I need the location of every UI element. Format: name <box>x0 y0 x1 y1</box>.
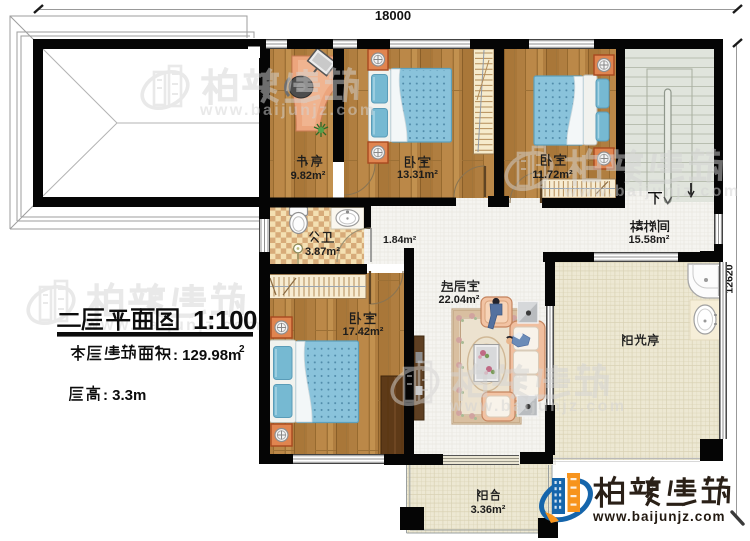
svg-text:www.baijunjz.com: www.baijunjz.com <box>592 509 726 524</box>
svg-text:3.36m²: 3.36m² <box>471 504 506 516</box>
svg-text:1.84m²: 1.84m² <box>383 234 417 246</box>
svg-text:18000: 18000 <box>375 8 411 23</box>
svg-text:: 3.3m: : 3.3m <box>103 387 146 404</box>
svg-text:15.58m²: 15.58m² <box>629 234 670 246</box>
svg-text:13.31m²: 13.31m² <box>397 169 438 181</box>
svg-text:www.baijunjz.com: www.baijunjz.com <box>199 102 377 119</box>
svg-text:www.baijunjz.com: www.baijunjz.com <box>563 183 741 200</box>
svg-text:9.82m²: 9.82m² <box>291 170 326 182</box>
svg-text:www.baijunjz.com: www.baijunjz.com <box>449 398 627 415</box>
svg-text:1:100: 1:100 <box>193 305 257 335</box>
svg-text:3.87m²: 3.87m² <box>305 246 340 258</box>
svg-text:22.04m²: 22.04m² <box>439 294 480 306</box>
svg-text:11.72m²: 11.72m² <box>532 169 573 181</box>
svg-text:17.42m²: 17.42m² <box>343 326 384 338</box>
svg-text:2: 2 <box>239 344 245 355</box>
svg-text:: 129.98m: : 129.98m <box>173 347 241 364</box>
